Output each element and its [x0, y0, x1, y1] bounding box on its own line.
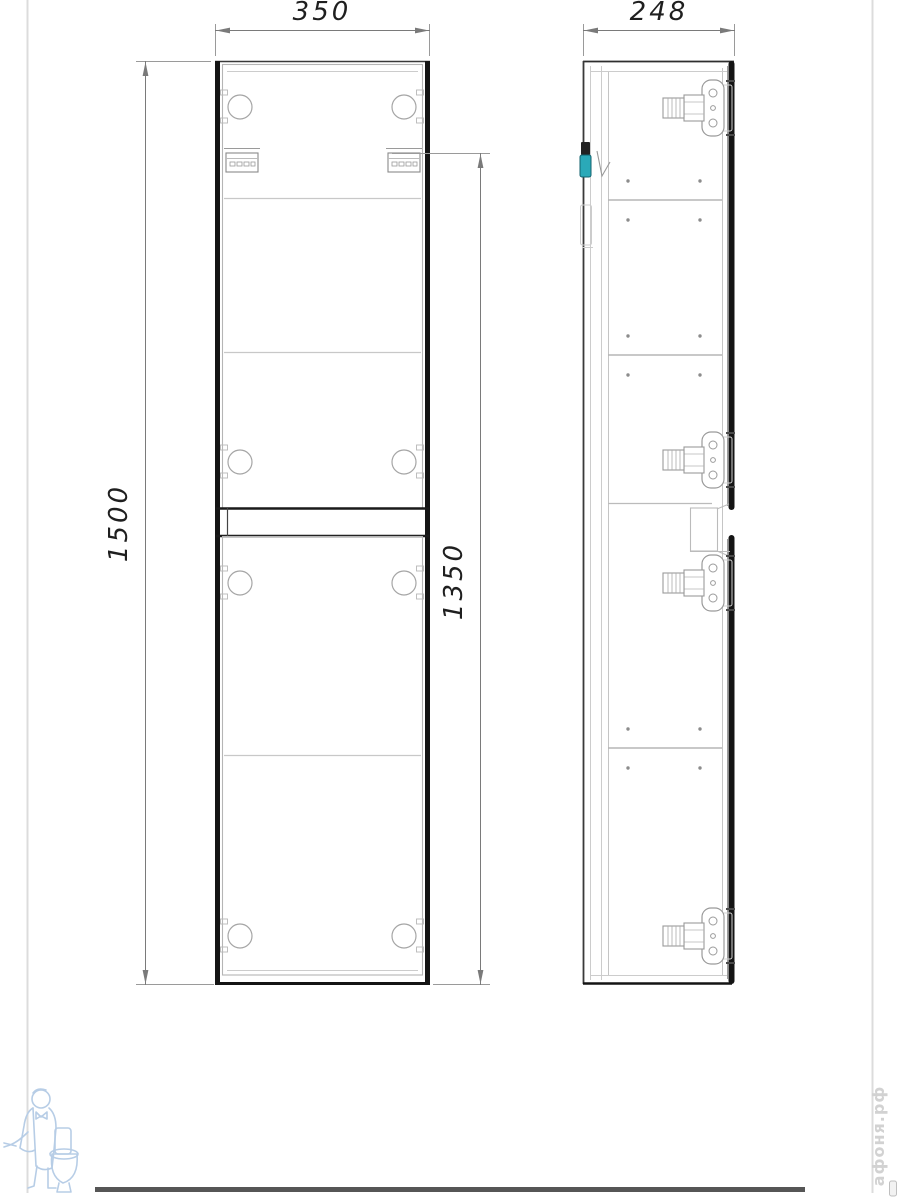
dimension-overall-height: 1500: [104, 61, 214, 985]
side-hinge-1: [663, 80, 735, 136]
front-hinge-cup-3: [221, 445, 253, 478]
bracket-teal-part: [580, 155, 591, 177]
front-hinge-cup-8: [392, 919, 424, 952]
side-view: [580, 61, 735, 984]
side-hinge-2: [663, 432, 735, 488]
dim-label-overall-height: 1500: [104, 484, 134, 562]
side-shelf-1: [608, 179, 722, 221]
front-hinge-cup-2: [392, 90, 424, 123]
front-hinge-cup-1: [221, 90, 253, 123]
watermark-site-text: афоня.рф: [869, 1086, 888, 1186]
front-mounting-plate-right: [386, 149, 422, 173]
technical-drawing-canvas: 350 248 1500 1350: [0, 0, 900, 1200]
front-hinge-cup-6: [392, 566, 424, 599]
side-mid-divider: [608, 504, 730, 557]
dimension-hanging-height: 1350: [392, 153, 490, 985]
dimension-side-depth: 248: [583, 0, 735, 56]
dimension-front-width: 350: [215, 0, 430, 56]
scrollbar-nub: [890, 1181, 897, 1196]
side-hinge-3: [663, 555, 735, 611]
bottom-frame-bar: [95, 1187, 805, 1192]
side-shelf-2: [608, 334, 722, 376]
dim-label-front-width: 350: [293, 0, 352, 27]
watermark-plumber-logo: [4, 1089, 78, 1192]
technical-drawing-page: 350 248 1500 1350: [0, 0, 900, 1200]
side-hinge-4: [663, 908, 735, 964]
front-mounting-plate-left: [224, 149, 260, 173]
side-rear-hanger: [581, 205, 594, 248]
dim-label-hanging-height: 1350: [439, 542, 469, 620]
front-upper-door: [223, 65, 423, 509]
side-shelf-3: [608, 727, 722, 769]
front-hinge-cup-5: [221, 566, 253, 599]
front-view: [215, 61, 430, 984]
front-hinge-cup-7: [221, 919, 253, 952]
dim-label-side-depth: 248: [630, 0, 689, 27]
front-hinge-cup-4: [392, 445, 424, 478]
side-wall-bracket: [580, 142, 610, 177]
bracket-dark-part: [581, 142, 590, 155]
